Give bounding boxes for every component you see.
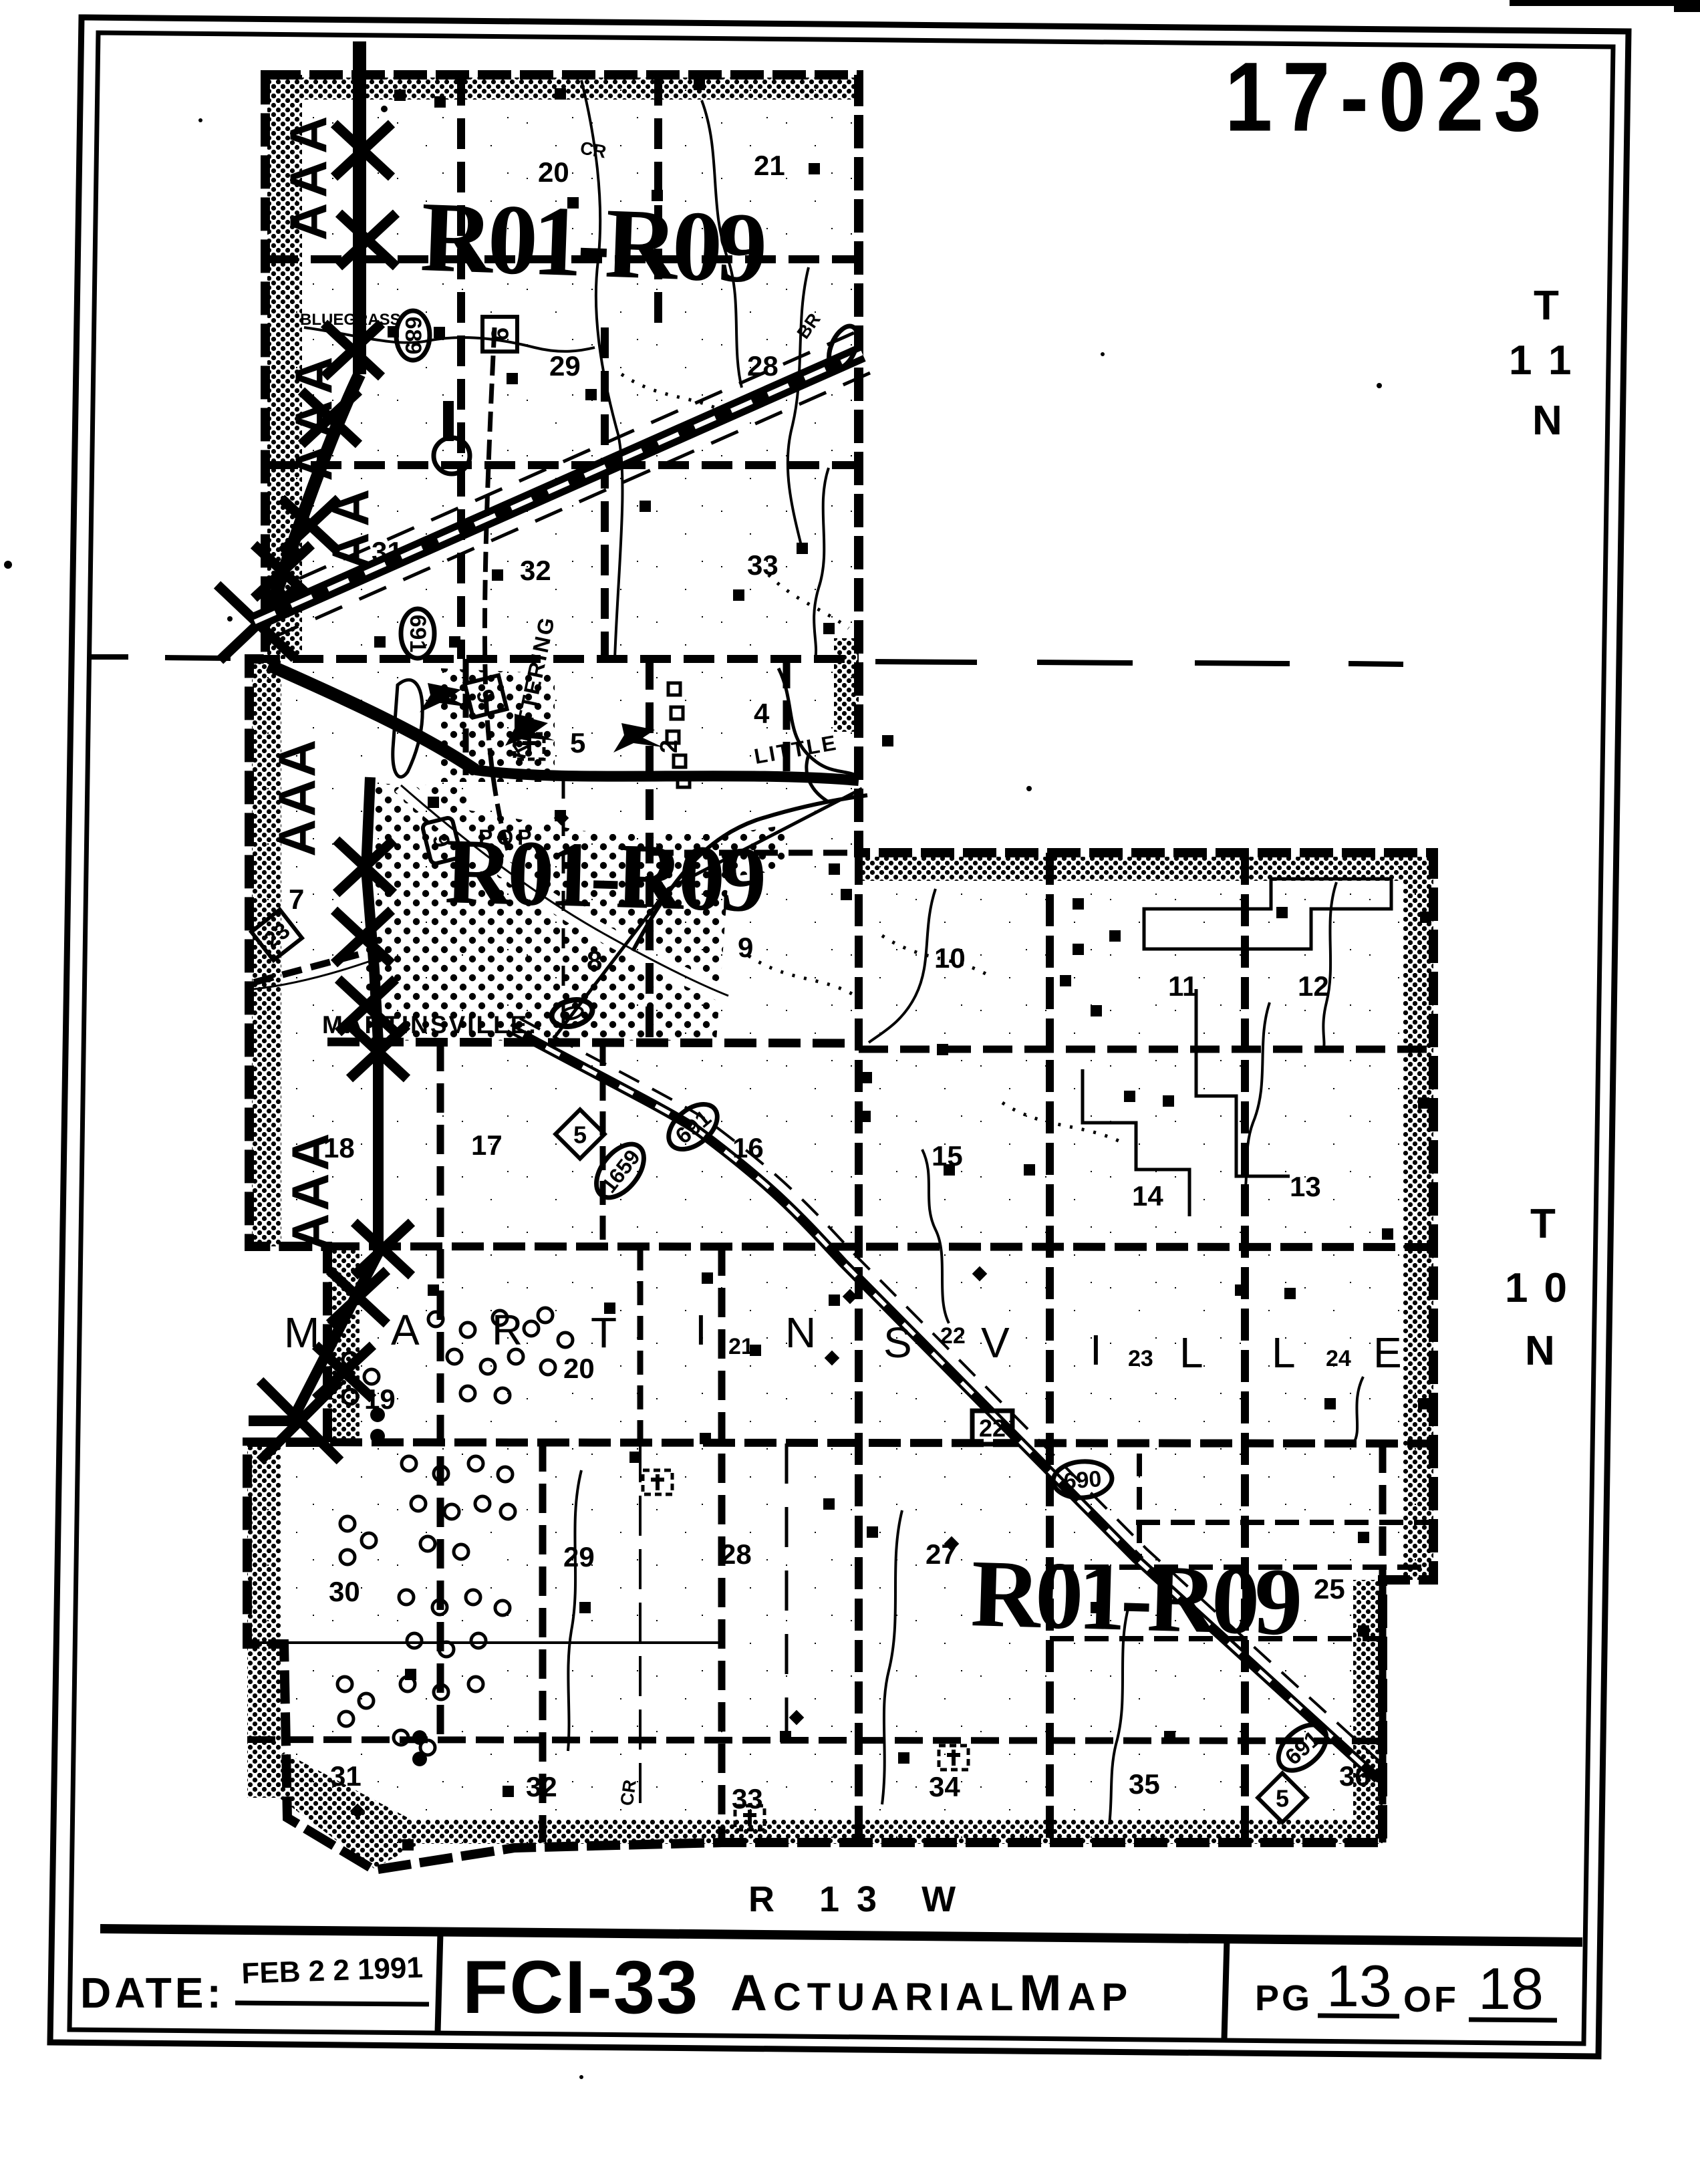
- svg-text:V: V: [981, 1319, 1010, 1367]
- svg-text:25: 25: [1314, 1573, 1345, 1605]
- svg-text:T: T: [591, 1309, 617, 1357]
- svg-text:20: 20: [538, 156, 569, 188]
- svg-text:10: 10: [1505, 1265, 1583, 1311]
- svg-text:DATE:: DATE:: [80, 1969, 225, 2017]
- svg-text:CR: CR: [617, 1778, 640, 1807]
- svg-text:7: 7: [289, 883, 304, 915]
- svg-text:11: 11: [1509, 337, 1590, 384]
- svg-text:T: T: [1530, 1201, 1556, 1247]
- svg-text:17-023: 17-023: [1225, 42, 1552, 152]
- svg-text:36: 36: [1339, 1760, 1371, 1792]
- svg-text:N: N: [1532, 398, 1562, 444]
- svg-text:29: 29: [563, 1541, 595, 1573]
- svg-text:29: 29: [549, 350, 581, 382]
- svg-text:A: A: [267, 740, 326, 777]
- svg-text:32: 32: [526, 1771, 557, 1802]
- svg-text:9: 9: [738, 932, 753, 963]
- svg-text:24: 24: [1326, 1346, 1351, 1371]
- svg-text:10: 10: [934, 942, 966, 974]
- svg-text:T: T: [1534, 283, 1559, 329]
- svg-text:N: N: [785, 1309, 816, 1357]
- svg-text:32: 32: [520, 555, 551, 586]
- svg-text:I: I: [1090, 1326, 1102, 1374]
- svg-text:R 13 W: R 13 W: [748, 1879, 973, 1919]
- svg-text:13: 13: [1326, 1953, 1392, 2019]
- svg-text:A: A: [391, 1306, 420, 1354]
- svg-text:A: A: [267, 819, 326, 857]
- svg-text:FEB 2 2 1991: FEB 2 2 1991: [241, 1951, 424, 1990]
- svg-text:690: 690: [1062, 1466, 1102, 1494]
- svg-text:31: 31: [372, 536, 403, 567]
- svg-text:S: S: [883, 1319, 912, 1367]
- svg-text:31: 31: [330, 1760, 362, 1792]
- svg-text:L: L: [1179, 1329, 1203, 1377]
- svg-text:5: 5: [573, 1121, 587, 1149]
- svg-text:8: 8: [587, 945, 602, 976]
- svg-text:A: A: [267, 779, 326, 817]
- svg-text:4: 4: [754, 698, 770, 729]
- svg-text:691: 691: [405, 615, 430, 653]
- svg-text:A: A: [281, 1174, 339, 1211]
- svg-text:N: N: [1525, 1328, 1555, 1374]
- svg-text:34: 34: [929, 1771, 960, 1802]
- svg-text:20: 20: [563, 1353, 595, 1384]
- svg-text:21: 21: [754, 150, 785, 181]
- svg-text:POP: POP: [478, 825, 536, 849]
- svg-text:2: 2: [488, 849, 500, 873]
- svg-text:L: L: [1272, 1329, 1296, 1377]
- svg-text:A: A: [281, 1214, 339, 1251]
- svg-text:13: 13: [1290, 1171, 1321, 1202]
- svg-text:OF: OF: [1403, 1980, 1459, 2020]
- svg-text:14: 14: [1132, 1180, 1163, 1212]
- svg-text:R01-R09: R01-R09: [419, 181, 766, 304]
- svg-text:28: 28: [720, 1538, 752, 1570]
- svg-text:PG: PG: [1255, 1978, 1312, 2018]
- svg-text:5: 5: [1276, 1785, 1289, 1812]
- svg-text:35: 35: [1129, 1768, 1160, 1800]
- svg-text:33: 33: [747, 549, 778, 581]
- svg-text:A: A: [284, 357, 343, 394]
- svg-text:FCI-33: FCI-33: [462, 1945, 699, 2029]
- svg-text:689: 689: [400, 317, 426, 355]
- svg-text:M: M: [284, 1309, 319, 1357]
- svg-text:28: 28: [747, 350, 778, 382]
- svg-text:A: A: [279, 116, 337, 154]
- svg-text:A: A: [279, 160, 337, 198]
- svg-text:A: A: [284, 400, 343, 438]
- svg-text:22: 22: [940, 1323, 966, 1349]
- svg-text:12: 12: [1298, 970, 1329, 1002]
- svg-text:16: 16: [732, 1132, 764, 1164]
- svg-text:BLUEGRASS: BLUEGRASS: [300, 311, 401, 329]
- svg-text:23: 23: [1128, 1346, 1153, 1371]
- svg-text:A: A: [284, 444, 343, 481]
- svg-text:I: I: [695, 1306, 707, 1354]
- svg-text:22: 22: [979, 1415, 1006, 1442]
- svg-text:MARTINSVILLE.: MARTINSVILLE.: [322, 1011, 538, 1039]
- svg-text:18: 18: [1478, 1955, 1544, 2022]
- svg-text:A: A: [321, 489, 380, 527]
- svg-text:33: 33: [732, 1783, 763, 1814]
- svg-text:30: 30: [329, 1576, 360, 1607]
- svg-text:E: E: [1373, 1329, 1402, 1377]
- svg-text:11: 11: [1168, 970, 1197, 1002]
- svg-text:17: 17: [471, 1129, 503, 1161]
- svg-text:5: 5: [570, 727, 585, 759]
- svg-text:A: A: [279, 203, 337, 241]
- svg-text:9: 9: [486, 327, 514, 341]
- svg-text:18: 18: [323, 1132, 355, 1164]
